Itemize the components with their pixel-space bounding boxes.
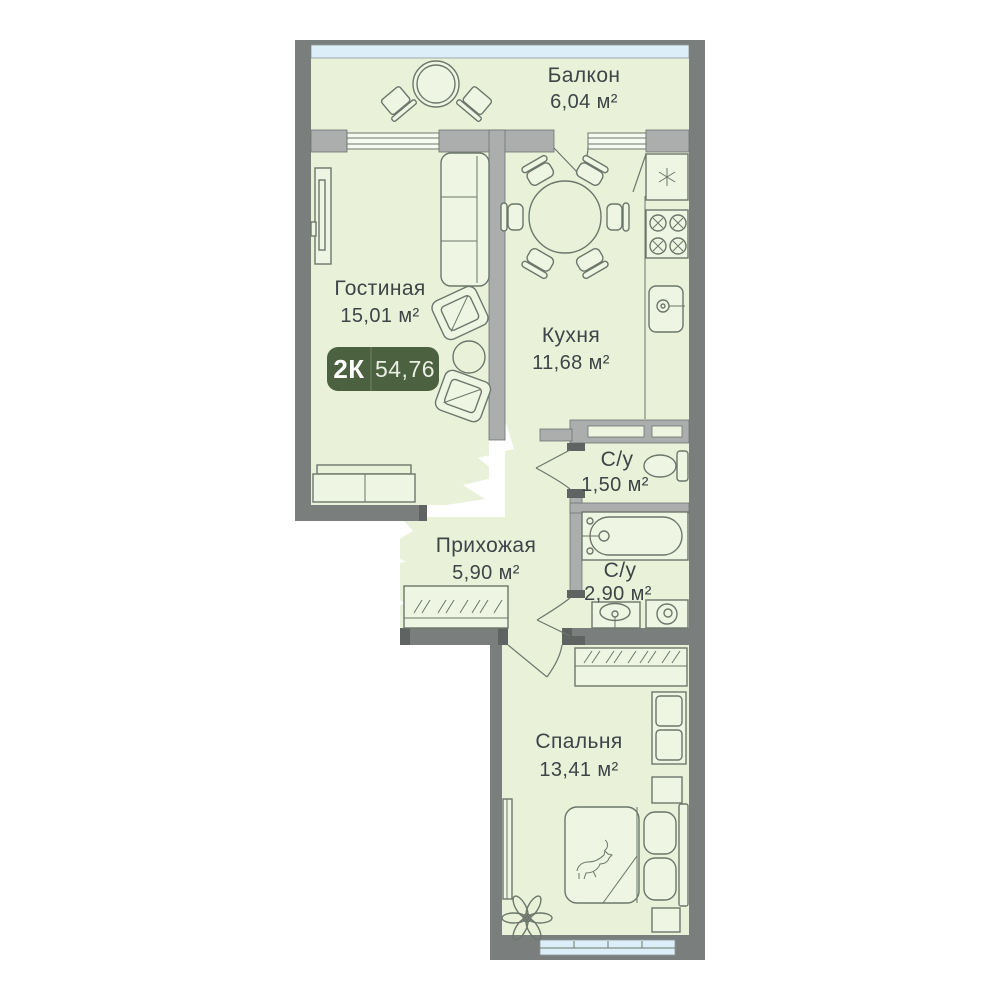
bedroom-mirror [503, 799, 512, 899]
wall-stub [540, 429, 572, 441]
living-area: 15,01 м² [340, 305, 419, 327]
balcony-window-glass [311, 45, 689, 58]
wc1-area: 1,50 м² [581, 474, 649, 496]
jamb [562, 628, 572, 645]
balcony-area: 6,04 м² [550, 91, 618, 113]
balcony-name: Балкон [548, 64, 621, 87]
bedroom-cabinet [652, 692, 686, 764]
wall-bedroom-window-rail-bottom [540, 955, 675, 960]
wall-bedroom-left [490, 645, 502, 960]
jamb [498, 628, 508, 645]
pier-balcony-right [646, 130, 689, 152]
wall-right [689, 40, 705, 960]
bedroom-area: 13,41 м² [539, 759, 618, 781]
kitchen-area: 11,68 м² [532, 352, 610, 374]
wall-hall-bottom [400, 628, 508, 645]
bedroom-name: Спальня [535, 730, 622, 753]
bedroom-passage-floor [508, 628, 562, 645]
kitchen-window [588, 133, 646, 149]
jamb [567, 590, 585, 598]
living-name: Гостиная [334, 277, 425, 300]
wall-bedroom-bottom-right [675, 935, 705, 960]
pier-balcony-left [311, 130, 347, 152]
apartment-badge: 2К 54,76 [327, 347, 439, 391]
floor-plan: Балкон 6,04 м² Гостиная 15,01 м² Кухня 1… [0, 0, 1000, 1000]
wc2-name: С/у [604, 559, 637, 582]
wall-top [295, 40, 705, 45]
fridge [646, 154, 688, 200]
wc1-name: С/у [601, 448, 634, 471]
hallway-name: Прихожая [436, 534, 537, 557]
wall-bedroom-bottom-left [490, 935, 540, 960]
nightstand [652, 908, 680, 932]
sofa [441, 153, 489, 286]
wc2-sink [592, 602, 640, 628]
stove [646, 210, 688, 258]
wall-left [295, 40, 311, 521]
bathtub [582, 512, 688, 560]
niche-2 [652, 426, 682, 437]
badge-rooms-label: 2К [333, 354, 364, 384]
wall-bedroom-window-rail-top [540, 935, 675, 940]
wall-living-bottom [295, 505, 427, 521]
balcony-table [413, 61, 459, 107]
corridor-floor [505, 443, 570, 517]
living-window [347, 133, 439, 149]
bedroom-wardrobe [575, 648, 687, 686]
jamb [400, 628, 410, 645]
hall-wardrobe [404, 586, 508, 628]
washing-machine [646, 600, 688, 628]
hallway-furniture [404, 586, 508, 628]
toilet-tank [677, 451, 688, 481]
partition-living-kitchen [489, 130, 505, 440]
floor-plan-svg: Балкон 6,04 м² Гостиная 15,01 м² Кухня 1… [0, 0, 1000, 1000]
wc2-area: 2,90 м² [584, 583, 652, 605]
nightstand [652, 777, 682, 803]
hallway-area: 5,90 м² [452, 562, 520, 584]
kitchen-sink [649, 286, 685, 332]
niche-1 [588, 426, 644, 437]
jamb [419, 505, 427, 521]
badge-total-area: 54,76 [375, 356, 435, 382]
kitchen-name: Кухня [542, 324, 600, 347]
